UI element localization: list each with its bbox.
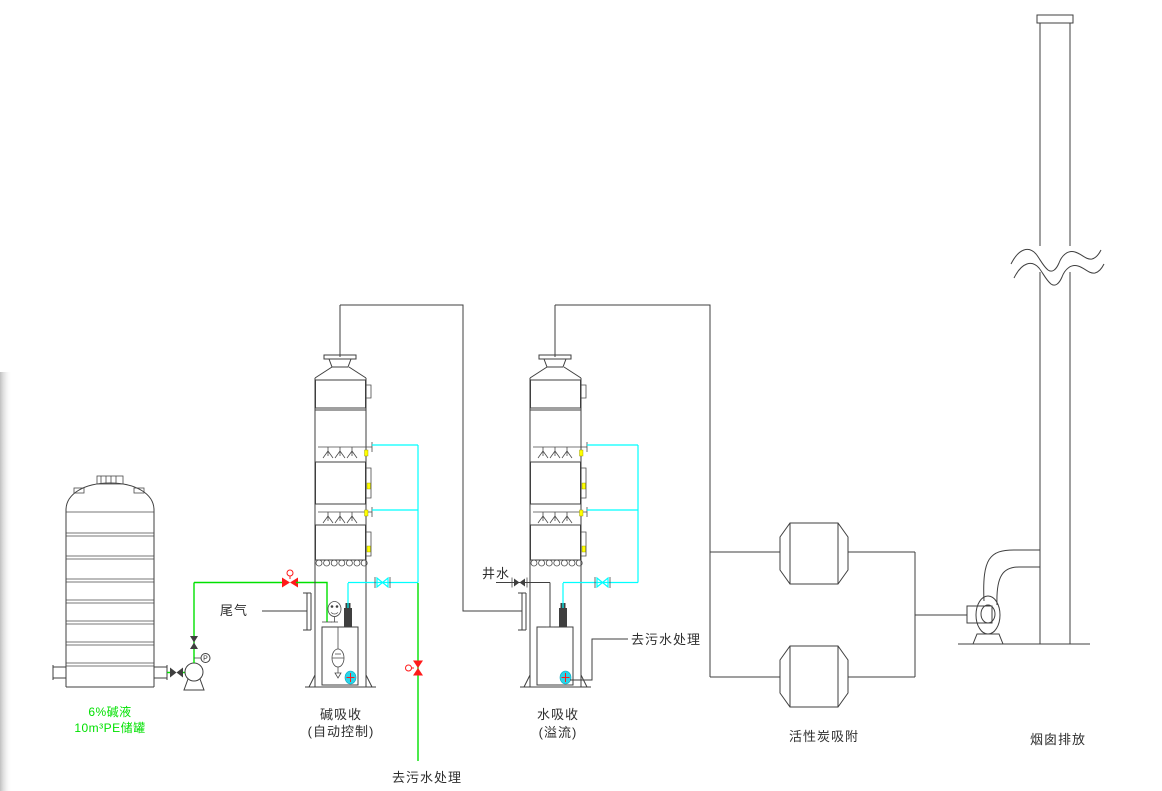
carbon-drum-top — [780, 523, 848, 584]
tower1-recirculation-piping — [348, 445, 418, 608]
sewage-right-label: 去污水处理 — [631, 632, 701, 647]
tower1-drain-line — [406, 583, 424, 761]
riser-valve-icon — [190, 636, 198, 649]
tower1-sump-gauge — [328, 602, 341, 623]
tank-label-line1: 6%碱液 — [88, 704, 131, 719]
diagram-canvas: P — [0, 0, 1162, 791]
well-water-label: 井水 — [482, 566, 510, 581]
activated-carbon-units — [710, 523, 967, 707]
sewage-bottom-label: 去污水处理 — [392, 770, 462, 785]
alkali-storage-tank — [53, 476, 167, 687]
feed-pump-symbol — [184, 663, 204, 690]
well-water-inlet — [496, 578, 554, 628]
tank-ribs — [66, 512, 154, 666]
tail-gas-label: 尾气 — [220, 603, 248, 618]
tower1-level-gauge — [332, 627, 344, 678]
break-symbol — [1011, 249, 1104, 285]
tank-outlet-valve-icon — [170, 668, 183, 678]
tower1-label-line2: (自动控制) — [308, 724, 375, 739]
alkali-absorption-tower — [303, 305, 376, 687]
tank-outlet-right — [154, 665, 167, 680]
tower2-label-line2: (溢流) — [539, 725, 578, 740]
carbon-drum-bottom — [780, 646, 848, 707]
carbon-label: 活性炭吸附 — [789, 729, 859, 744]
process-flow-diagram: P — [0, 0, 1162, 791]
chimney-label: 烟囱排放 — [1030, 732, 1086, 747]
tower2-overflow-line — [570, 639, 628, 680]
alkali-control-valve-icon — [282, 570, 298, 588]
tank-label-line2: 10m³PE储罐 — [74, 720, 145, 735]
tower1-recirc-valve-icon — [375, 577, 390, 588]
drain-valve-icon — [406, 661, 424, 676]
pressure-gauge: P — [194, 654, 210, 663]
tower2-recirculation-piping — [563, 445, 638, 608]
tank-outlet-left — [53, 665, 66, 680]
gas-duct-tower2-to-carbon — [555, 305, 710, 677]
tower2-label-line1: 水吸收 — [537, 707, 579, 722]
screen-edge-shading — [0, 372, 12, 791]
tower2-recirc-valve-icon — [595, 577, 610, 588]
pressure-gauge-letter: P — [203, 656, 208, 663]
induced-draft-fan — [967, 550, 1040, 644]
tower1-label-line1: 碱吸收 — [320, 707, 362, 722]
water-absorption-tower — [518, 305, 591, 687]
